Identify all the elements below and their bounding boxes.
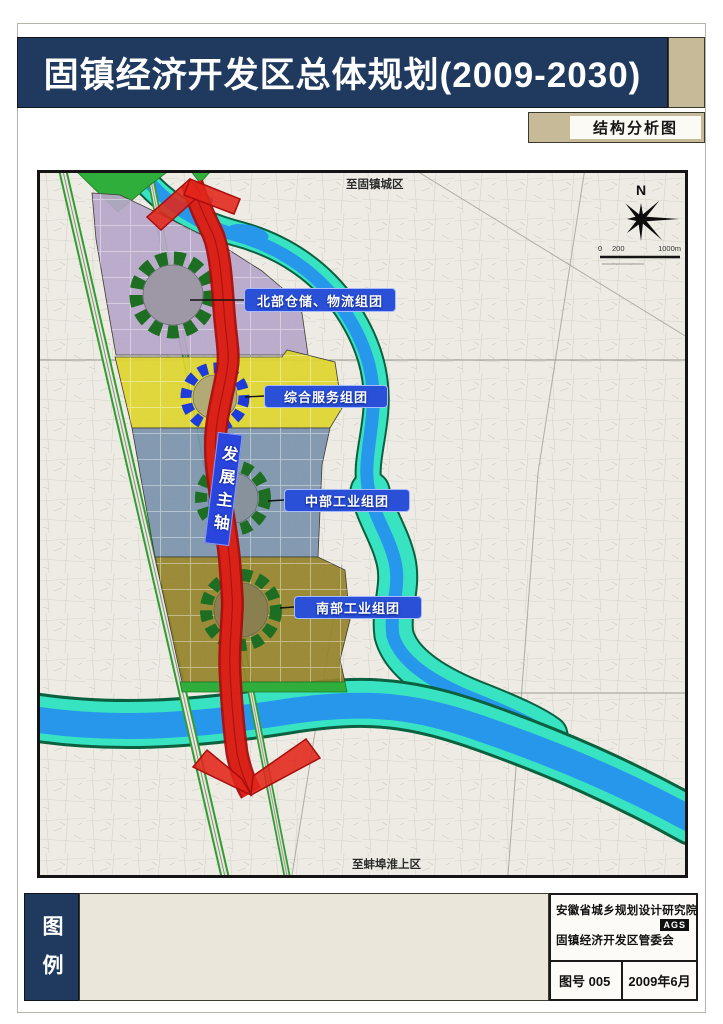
title-block-orgs: 安徽省城乡规划设计研究院 AGS 固镇经济开发区管委会	[551, 895, 696, 962]
subtitle-text: 结构分析图	[570, 116, 701, 139]
label-north-logistics-cluster: 北部仓储、物流组团	[244, 288, 396, 312]
map-canvas: 至固镇城区 至蚌埠淮上区 N 0 200 1000m	[40, 173, 685, 875]
title-corner-block	[668, 37, 705, 108]
design-institute-name: 安徽省城乡规划设计研究院	[556, 902, 691, 918]
legend-title-box: 图例	[24, 893, 79, 1001]
green-strip-south	[180, 682, 347, 692]
scale-end: 1000m	[658, 244, 681, 253]
legend-panel	[79, 893, 549, 1001]
ags-badge: AGS	[660, 919, 689, 931]
sheet-number: 图号 005	[551, 962, 623, 999]
plan-sheet: 固镇经济开发区总体规划(2009-2030) 结构分析图	[0, 0, 723, 1024]
label-comprehensive-service-cluster: 综合服务组团	[264, 385, 388, 408]
north-label: N	[636, 182, 646, 198]
title-block: 安徽省城乡规划设计研究院 AGS 固镇经济开发区管委会 图号 005 2009年…	[549, 893, 698, 1001]
title-block-meta: 图号 005 2009年6月	[551, 962, 696, 999]
sheet-date: 2009年6月	[623, 962, 696, 999]
structure-analysis-map: 至固镇城区 至蚌埠淮上区 N 0 200 1000m	[37, 170, 688, 878]
to-bengbu-label: 至蚌埠淮上区	[352, 857, 421, 871]
to-guzhen-city-label: 至固镇城区	[346, 177, 404, 191]
label-central-industry-cluster: 中部工业组团	[284, 489, 410, 512]
client-name: 固镇经济开发区管委会	[556, 932, 691, 948]
institute-badge-row: AGS	[558, 919, 689, 931]
subtitle-box: 结构分析图	[528, 112, 705, 143]
scale-mid: 200	[612, 244, 625, 253]
scale-start: 0	[598, 244, 602, 253]
page-title: 固镇经济开发区总体规划(2009-2030)	[17, 37, 668, 108]
label-south-industry-cluster: 南部工业组团	[294, 596, 422, 619]
